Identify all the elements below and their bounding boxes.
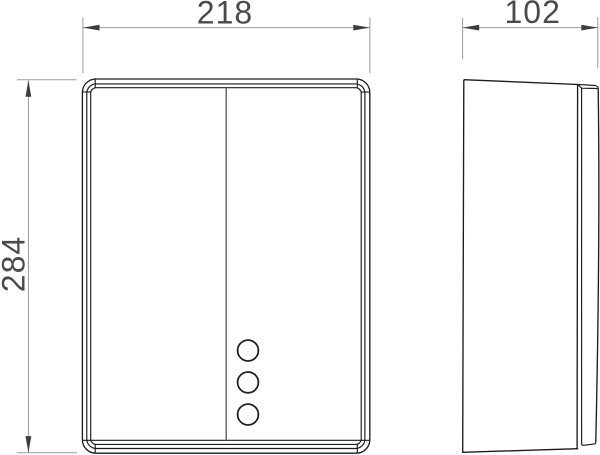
- svg-text:284: 284: [0, 236, 32, 292]
- svg-text:102: 102: [505, 0, 561, 30]
- svg-text:218: 218: [197, 0, 253, 30]
